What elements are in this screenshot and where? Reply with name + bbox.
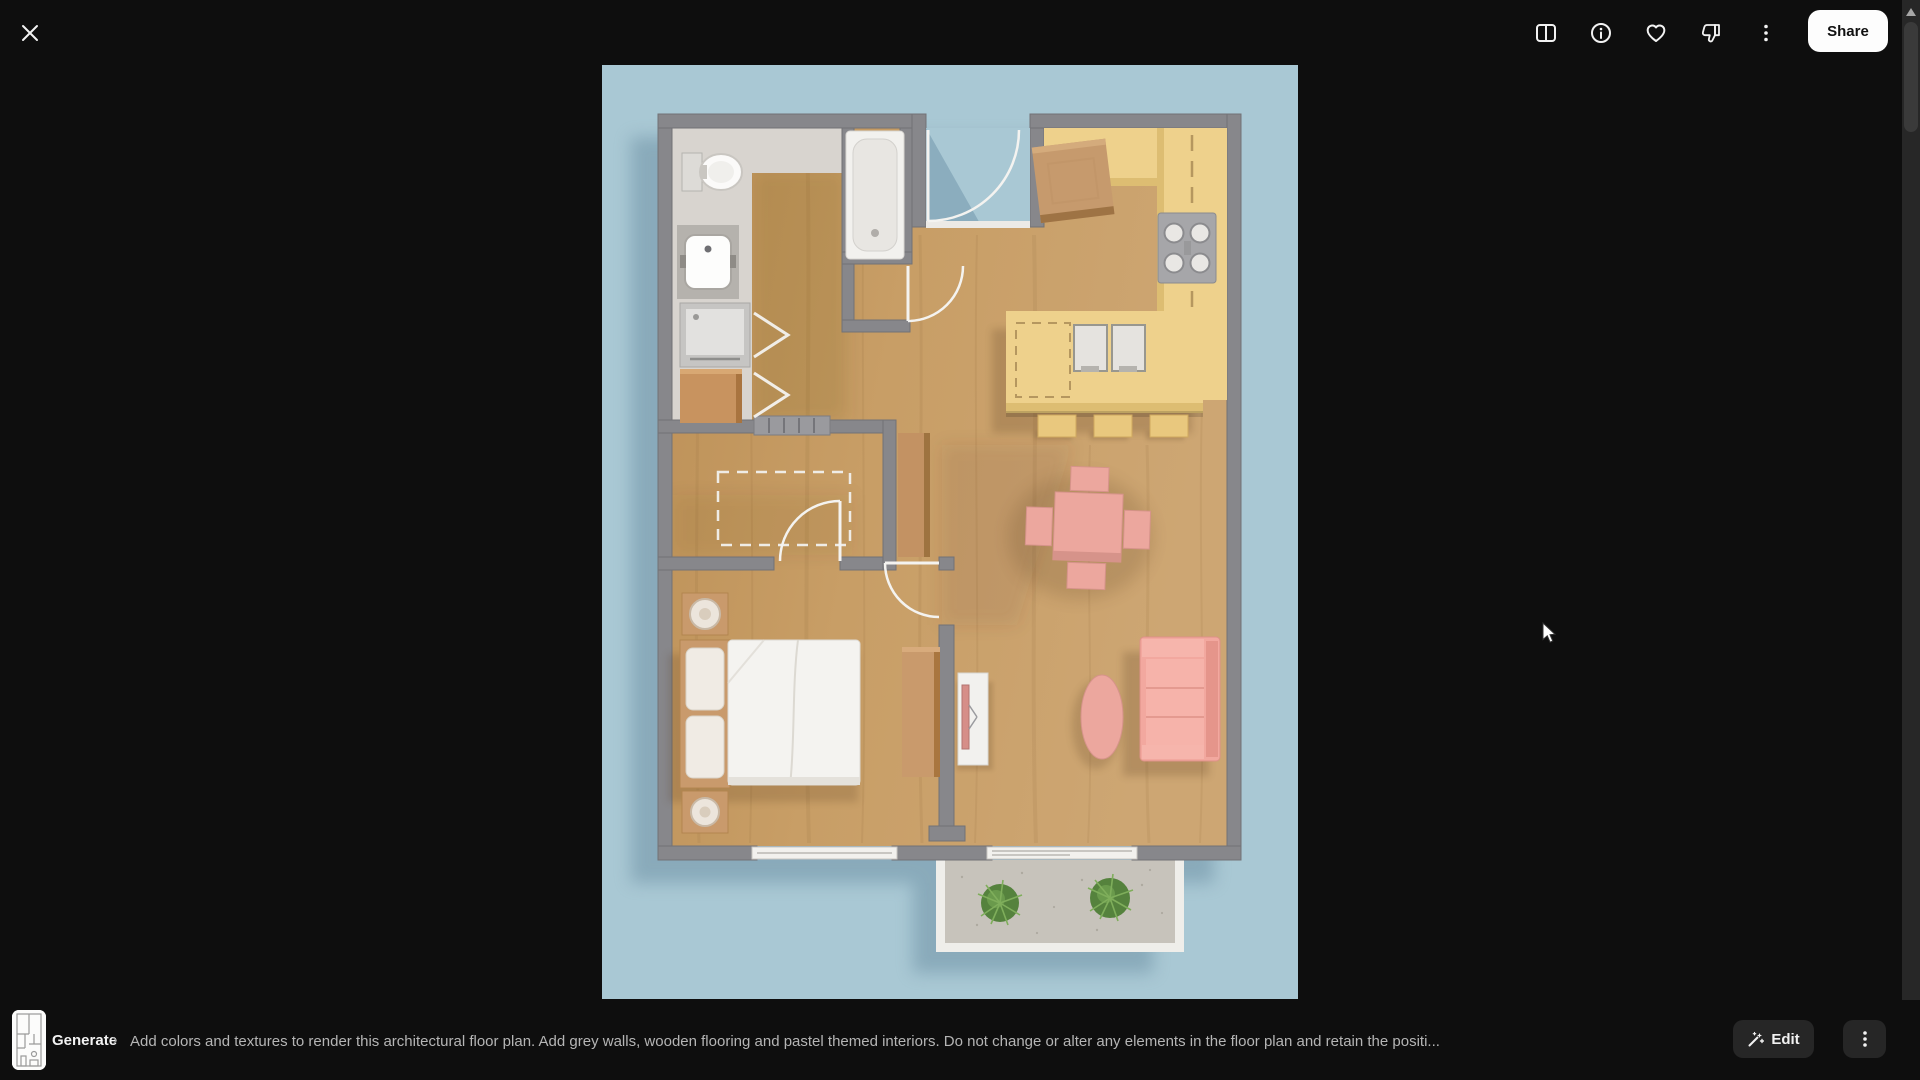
- edit-label: Edit: [1771, 1031, 1799, 1048]
- floor-plan-render: [602, 65, 1298, 999]
- magic-wand-icon: [1747, 1031, 1764, 1048]
- close-icon: [19, 22, 41, 44]
- wardrobe: [898, 433, 930, 557]
- more-options-icon: [1856, 1029, 1874, 1049]
- bathtub: [846, 131, 904, 259]
- coffee-table: [1081, 675, 1123, 759]
- info-button[interactable]: [1585, 17, 1617, 49]
- chevron-right-icon: ›: [112, 1030, 118, 1050]
- compare-icon: [1534, 21, 1558, 45]
- compare-button[interactable]: [1530, 17, 1562, 49]
- favorite-icon: [1644, 21, 1668, 45]
- kitchen-corner-cabinet: [1032, 139, 1115, 223]
- bed: [680, 640, 860, 788]
- close-button[interactable]: [14, 17, 46, 49]
- bedroom-window: [752, 847, 897, 859]
- scroll-up-icon[interactable]: [1906, 8, 1916, 16]
- toilet: [682, 153, 742, 191]
- thumbs-down-button[interactable]: [1695, 17, 1727, 49]
- kitchen-island: [1006, 311, 1203, 417]
- tv-console: [957, 673, 993, 770]
- entry: [926, 128, 1030, 228]
- favorite-button[interactable]: [1640, 17, 1672, 49]
- stove: [1158, 213, 1216, 283]
- bar-stools: [1034, 415, 1188, 440]
- prompt-text: Add colors and textures to render this a…: [130, 1033, 1590, 1050]
- dresser: [902, 647, 940, 777]
- prompt-more-options-button[interactable]: [1843, 1020, 1886, 1058]
- thumbs-down-icon: [1699, 21, 1723, 45]
- generate-breadcrumb[interactable]: Generate: [52, 1032, 117, 1049]
- floor-plan-thumbnail-icon: [12, 1010, 46, 1070]
- wall-vent: [754, 416, 830, 435]
- more-options-icon: [1754, 21, 1778, 45]
- source-thumbnail[interactable]: [12, 1010, 46, 1070]
- sink: [677, 225, 739, 299]
- nightstand-bottom: [682, 791, 728, 833]
- washing-machine: [680, 303, 750, 367]
- sliding-door: [987, 847, 1137, 859]
- generated-image[interactable]: [602, 65, 1298, 999]
- scrollbar-thumb[interactable]: [1904, 22, 1918, 132]
- info-icon: [1589, 21, 1613, 45]
- scrollbar[interactable]: [1902, 0, 1920, 1080]
- share-button[interactable]: Share: [1808, 10, 1888, 52]
- more-options-button[interactable]: [1750, 17, 1782, 49]
- bathroom-cabinet: [680, 369, 742, 423]
- balcony: [936, 860, 1184, 952]
- sofa: [1140, 637, 1220, 761]
- mouse-cursor: [1542, 622, 1558, 644]
- edit-button[interactable]: Edit: [1733, 1020, 1814, 1058]
- nightstand-top: [682, 593, 728, 635]
